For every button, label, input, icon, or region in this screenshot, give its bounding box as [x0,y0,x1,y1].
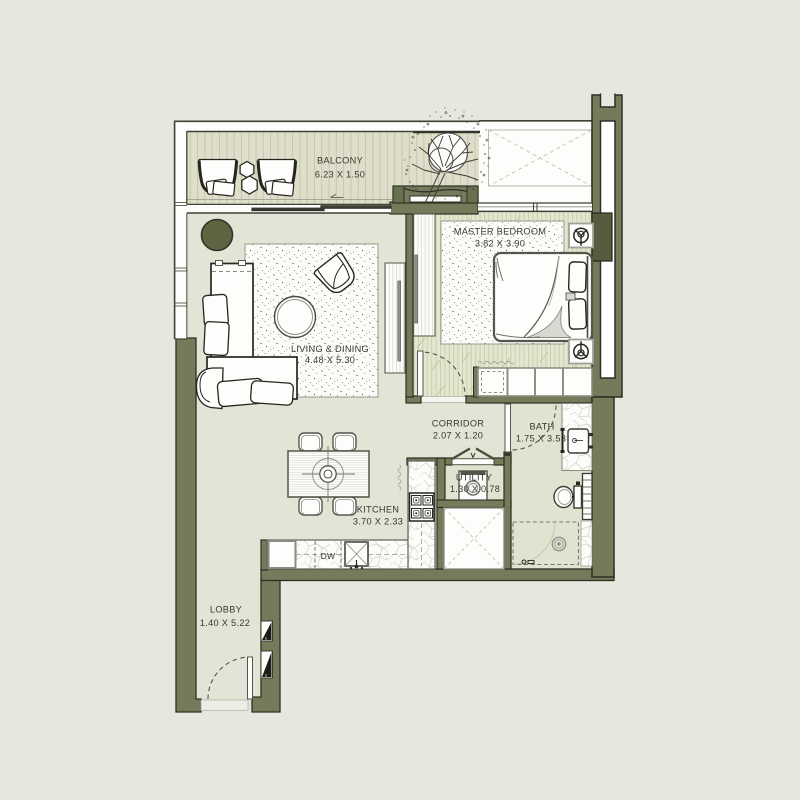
svg-text:s: s [265,636,267,641]
svg-text:s: s [265,673,267,678]
svg-text:DW: DW [321,551,336,561]
svg-text:BATH: BATH [529,422,554,432]
svg-text:1.30 X 0.78: 1.30 X 0.78 [450,484,500,494]
svg-text:LOBBY: LOBBY [210,605,242,615]
svg-text:LIVING & DINING: LIVING & DINING [291,344,369,354]
svg-text:2.07 X 1.20: 2.07 X 1.20 [433,431,483,441]
svg-text:4.48 X 5.30: 4.48 X 5.30 [305,355,355,365]
svg-text:1.75 X 3.53: 1.75 X 3.53 [516,434,566,444]
svg-text:BALCONY: BALCONY [317,156,363,166]
svg-text:3.82 X 3.90: 3.82 X 3.90 [475,239,525,249]
svg-text:KITCHEN: KITCHEN [357,505,399,515]
svg-text:UTILITY: UTILITY [456,473,492,483]
svg-text:MASTER BEDROOM: MASTER BEDROOM [454,227,547,237]
svg-text:1.40 X 5.22: 1.40 X 5.22 [200,618,250,628]
svg-text:3.70 X 2.33: 3.70 X 2.33 [353,517,403,527]
svg-text:CORRIDOR: CORRIDOR [432,419,484,429]
svg-text:6.23 X 1.50: 6.23 X 1.50 [315,170,365,180]
